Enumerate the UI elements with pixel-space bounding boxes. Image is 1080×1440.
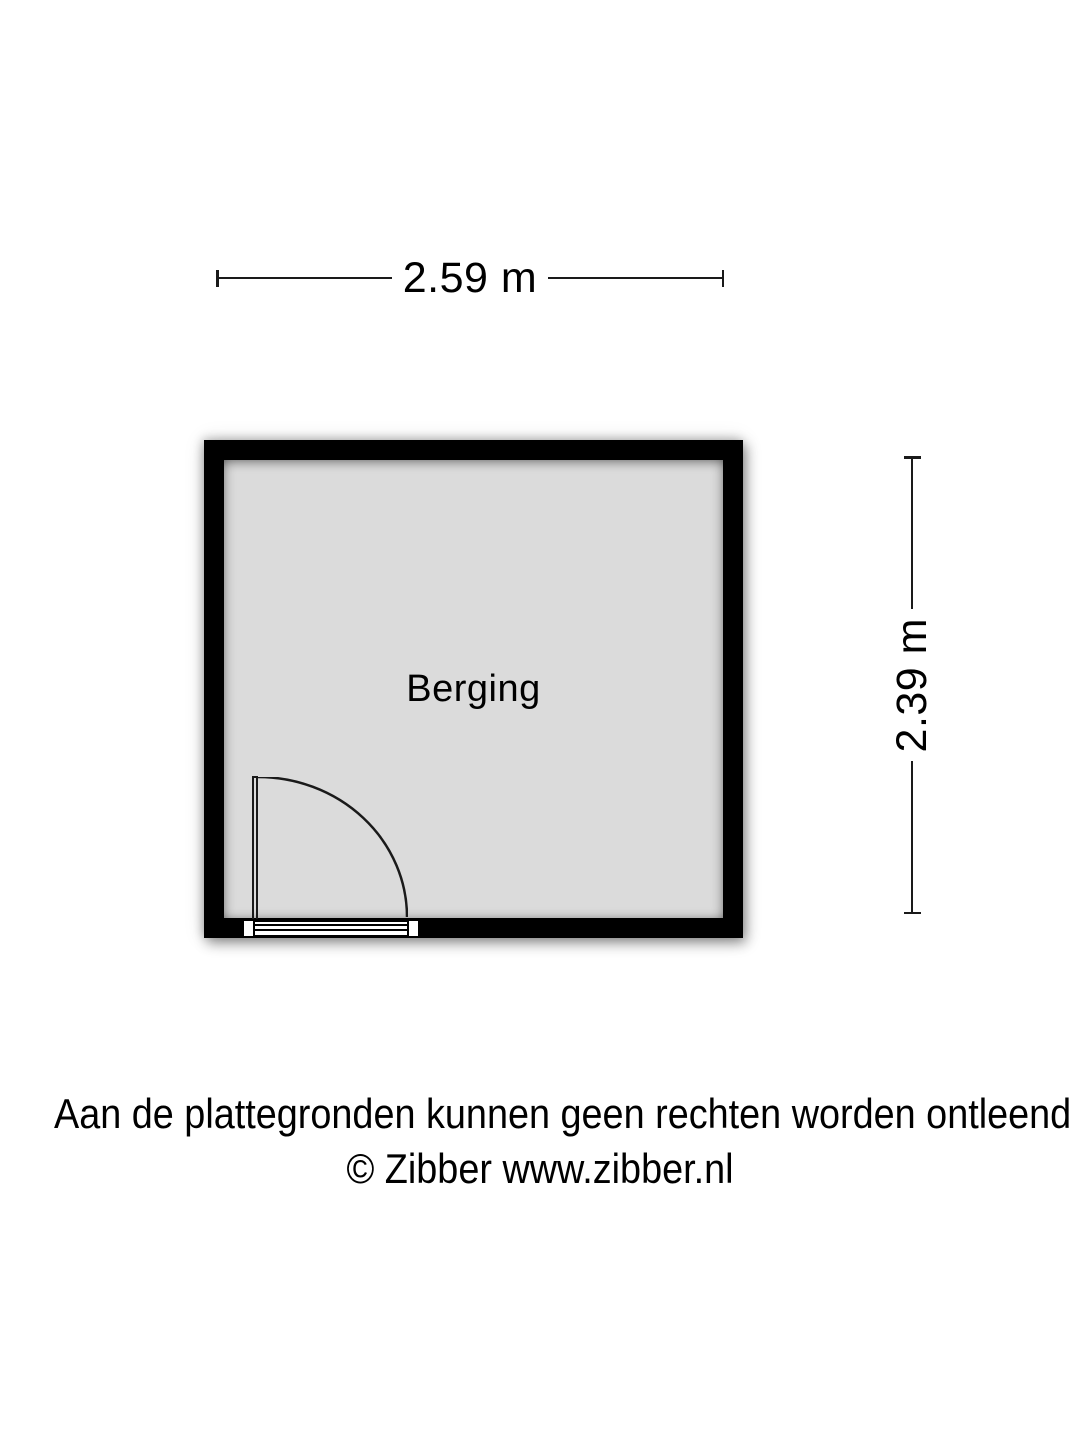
threshold-line (255, 929, 407, 931)
dimension-line-right-segment (548, 277, 721, 280)
dimension-line-top-segment (911, 459, 914, 609)
door-jamb-right (407, 919, 420, 938)
dimension-line-left-segment (219, 277, 392, 280)
dimension-line-bottom-segment (911, 761, 914, 911)
room-label: Berging (406, 670, 540, 708)
door-opening (242, 918, 420, 938)
door-jamb-left (242, 919, 255, 938)
threshold-line (255, 924, 407, 926)
dimension-tick-right (722, 270, 725, 287)
width-dimension: 2.59 m (216, 254, 724, 302)
disclaimer-line1: Aan de plattegronden kunnen geen rechten… (54, 1086, 1026, 1141)
door-leaf (252, 776, 258, 919)
disclaimer-line2: © Zibber www.zibber.nl (54, 1141, 1026, 1196)
door-threshold (255, 920, 407, 937)
width-dimension-label: 2.59 m (403, 257, 537, 300)
dimension-tick-bottom (904, 912, 921, 915)
height-dimension-label: 2.39 m (891, 618, 934, 752)
disclaimer: Aan de plattegronden kunnen geen rechten… (54, 1086, 1026, 1197)
door-swing-arc (258, 777, 408, 918)
floorplan-canvas: 2.59 m Berging 2.39 m Aan de plattegrond… (0, 0, 1080, 1440)
height-dimension: 2.39 m (890, 456, 934, 914)
